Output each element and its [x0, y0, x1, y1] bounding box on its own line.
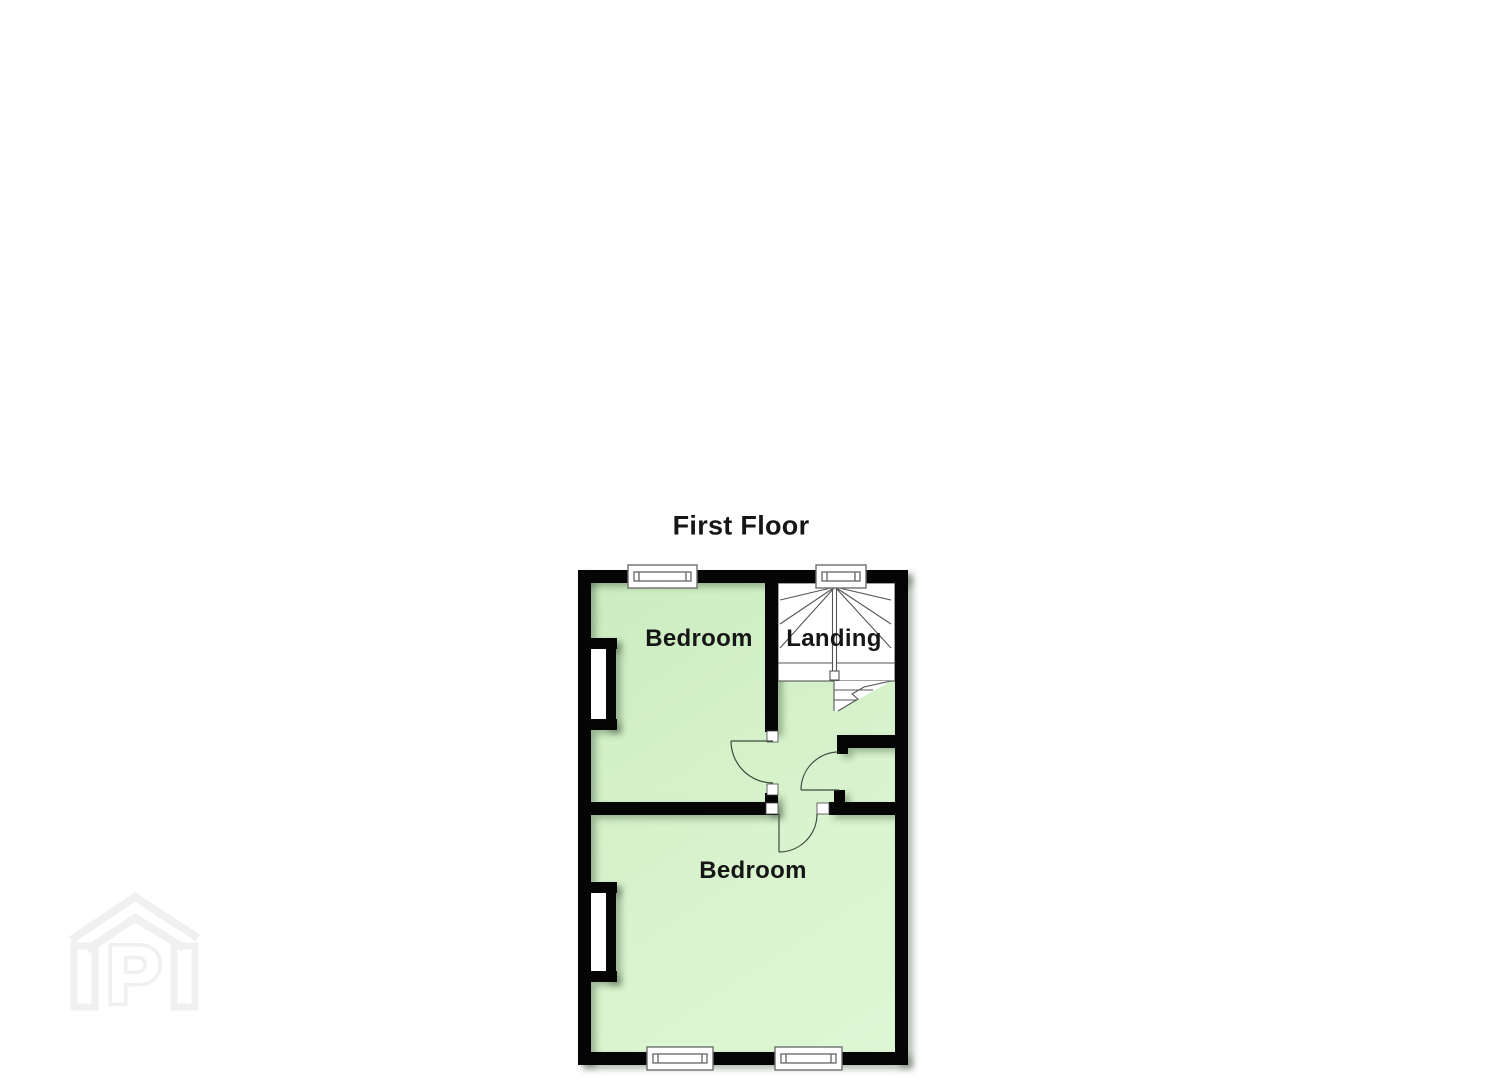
room-label-landing: Landing [786, 625, 881, 653]
window-top-left-icon [628, 565, 697, 588]
watermark-right-pillar-icon [174, 946, 195, 1007]
window-bottom-left-icon [647, 1047, 713, 1070]
watermark-letter: P [107, 930, 162, 1021]
watermark-logo: P [71, 897, 198, 1021]
window-bottom-right-icon [775, 1047, 842, 1070]
watermark-left-pillar-icon [74, 946, 95, 1007]
window-top-right-icon [816, 565, 866, 588]
page-background: P [0, 0, 1485, 1080]
room-label-bedroom-2: Bedroom [699, 857, 806, 885]
room-label-bedroom-1: Bedroom [645, 625, 752, 653]
floorplan-title: First Floor [673, 511, 810, 542]
